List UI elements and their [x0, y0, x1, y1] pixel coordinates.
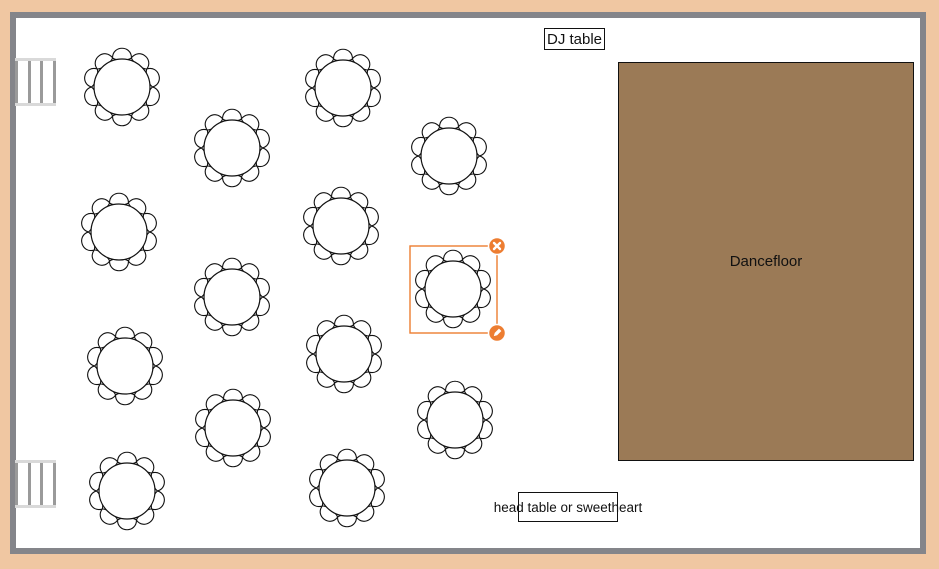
table-7[interactable]	[301, 187, 381, 265]
table-top	[204, 120, 260, 176]
table-top	[313, 198, 369, 254]
table-10[interactable]	[193, 389, 273, 467]
floor-plan-canvas[interactable]: Dancefloor DJ table head table or sweeth…	[0, 0, 939, 569]
edit-handle[interactable]	[489, 325, 506, 342]
table-13[interactable]	[87, 452, 167, 530]
table-top	[316, 326, 372, 382]
table-top	[315, 60, 371, 116]
delete-handle[interactable]	[489, 238, 506, 255]
table-8[interactable]	[413, 250, 493, 328]
tables-layer	[0, 0, 939, 569]
table-9[interactable]	[85, 327, 165, 405]
table-top	[319, 460, 375, 516]
table-top	[204, 269, 260, 325]
table-12[interactable]	[415, 381, 495, 459]
table-3[interactable]	[303, 49, 383, 127]
table-top	[205, 400, 261, 456]
table-top	[427, 392, 483, 448]
table-top	[91, 204, 147, 260]
table-14[interactable]	[307, 449, 387, 527]
table-top	[97, 338, 153, 394]
table-top	[421, 128, 477, 184]
table-top	[425, 261, 481, 317]
table-top	[99, 463, 155, 519]
table-2[interactable]	[192, 109, 272, 187]
table-top	[94, 59, 150, 115]
table-11[interactable]	[304, 315, 384, 393]
table-4[interactable]	[409, 117, 489, 195]
table-1[interactable]	[82, 48, 162, 126]
table-5[interactable]	[79, 193, 159, 271]
table-6[interactable]	[192, 258, 272, 336]
